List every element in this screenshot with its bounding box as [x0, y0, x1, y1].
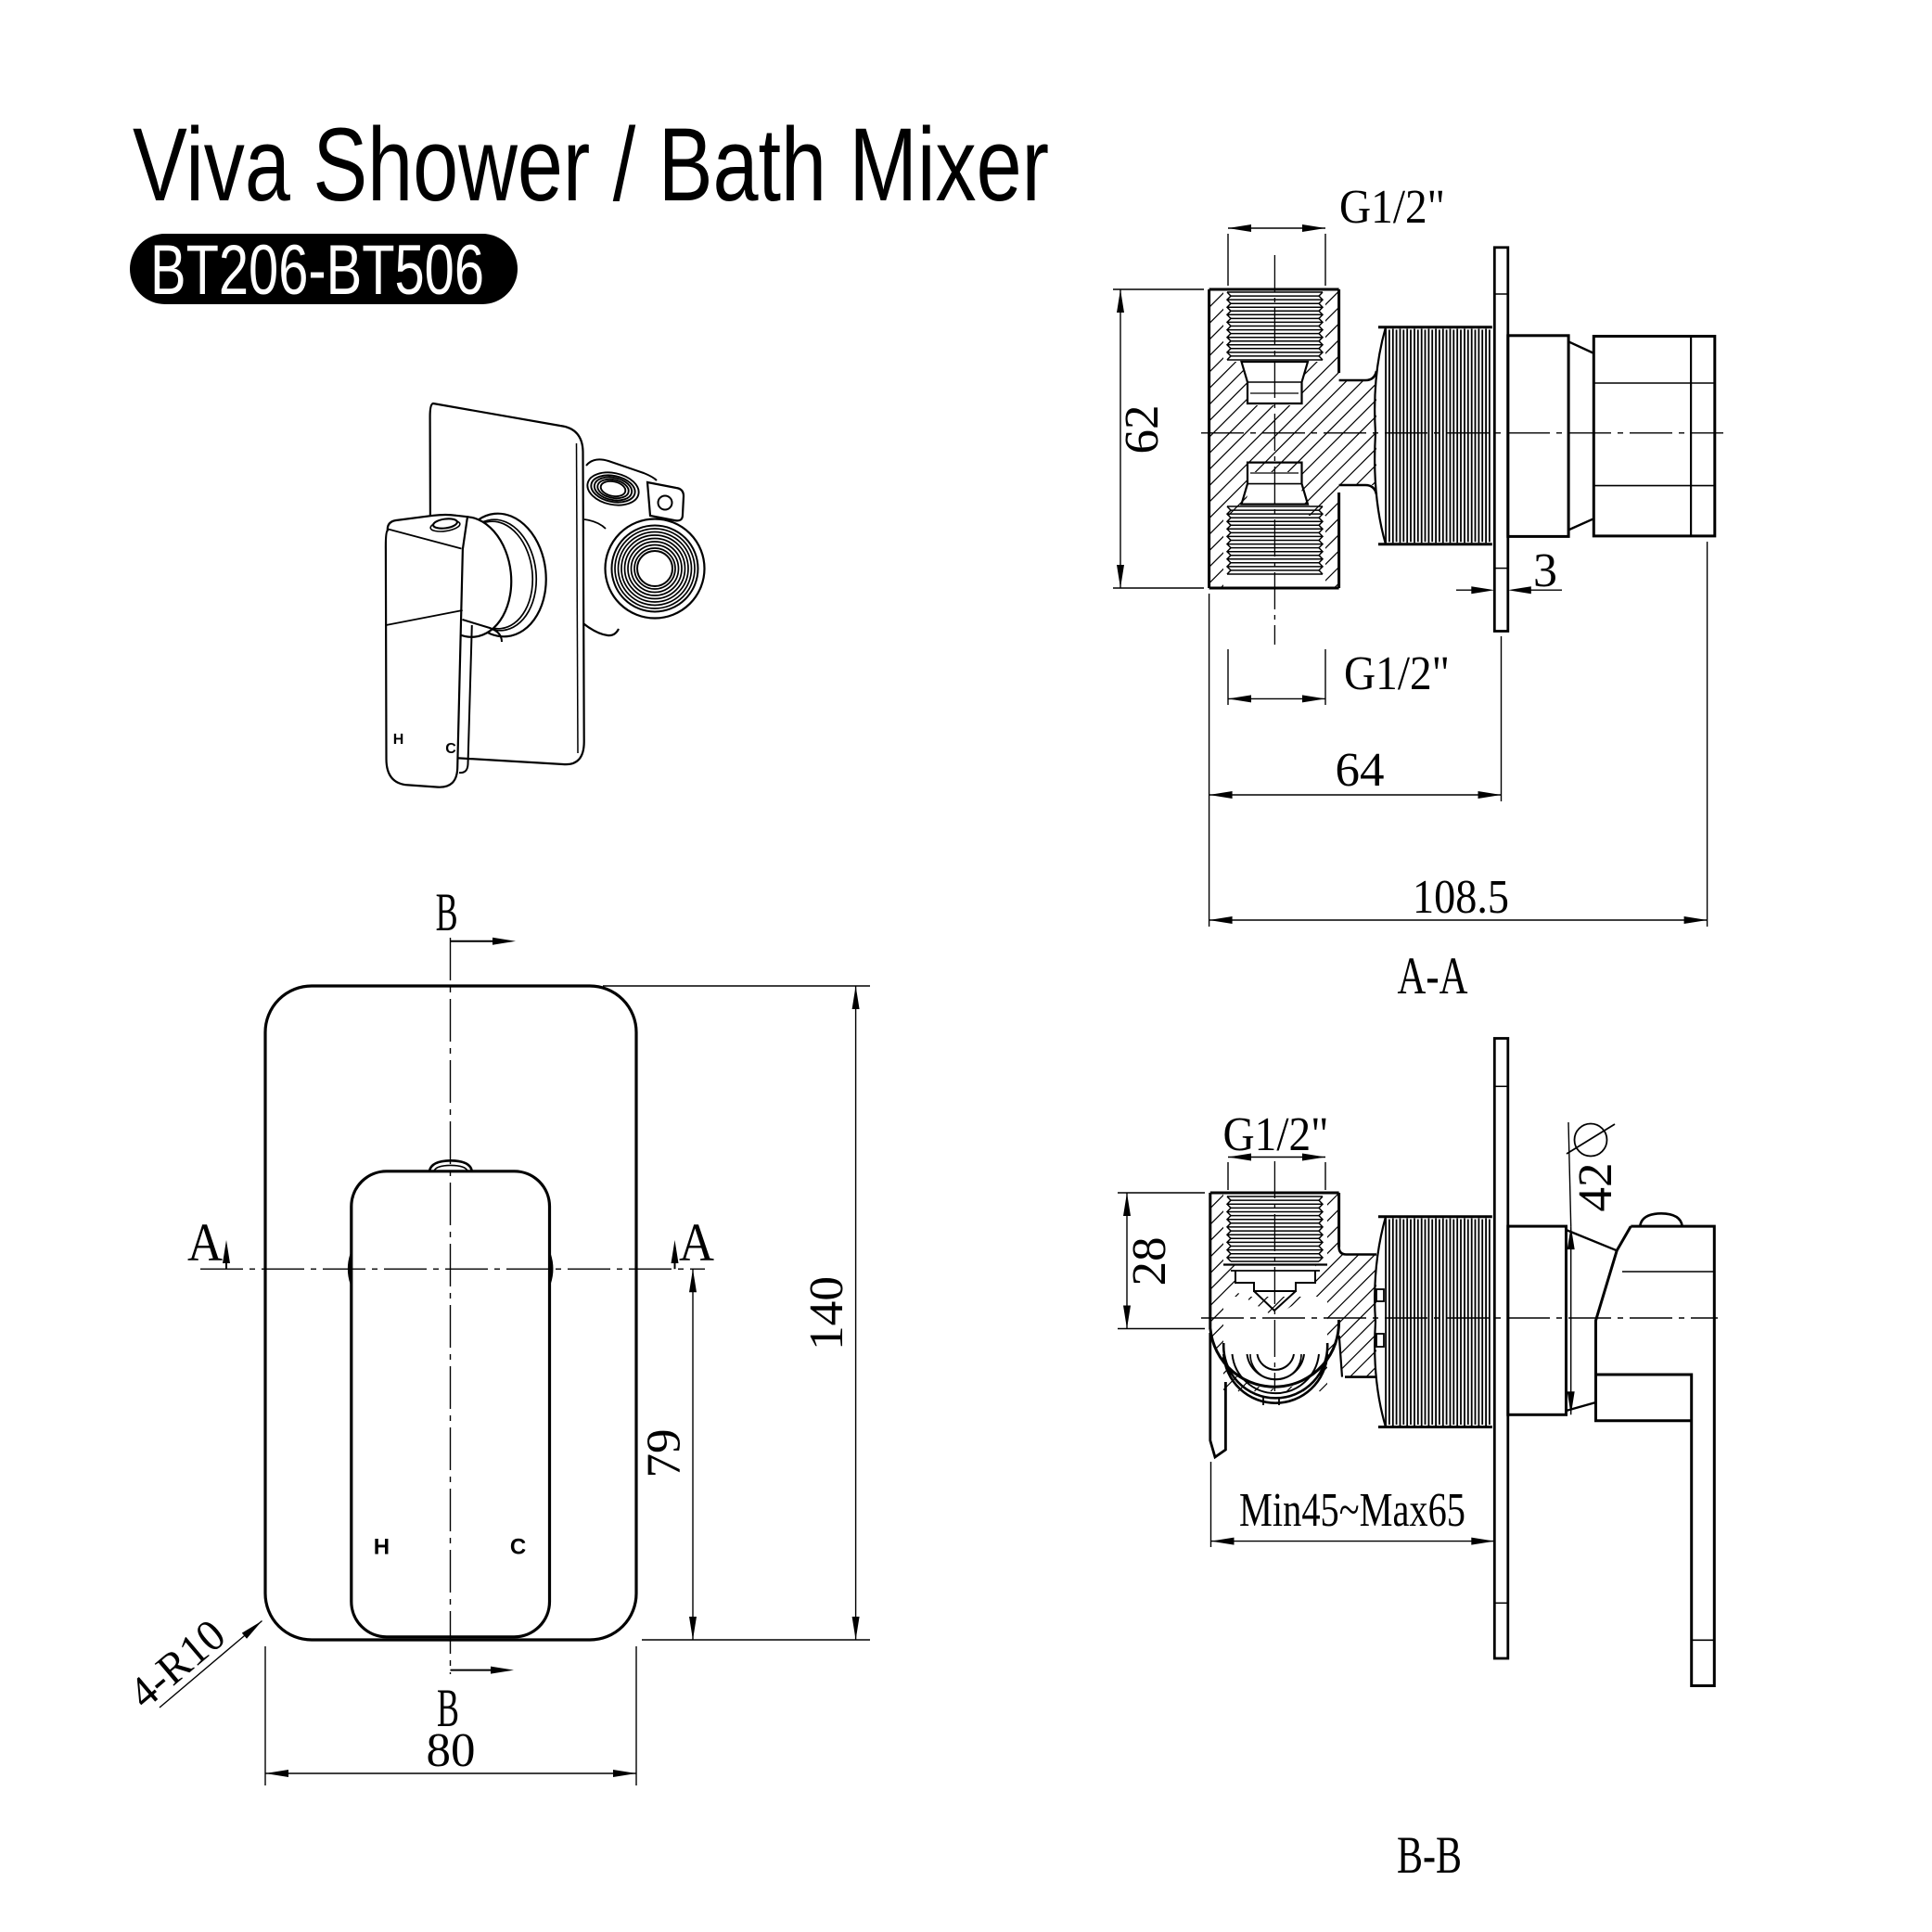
svg-text:G1/2": G1/2"	[1223, 1108, 1329, 1161]
svg-text:B-B: B-B	[1397, 1826, 1462, 1885]
svg-text:A-A: A-A	[1398, 947, 1468, 1005]
svg-text:140: 140	[800, 1276, 853, 1350]
svg-text:64: 64	[1336, 744, 1385, 797]
svg-text:108.5: 108.5	[1413, 871, 1509, 924]
svg-text:A: A	[679, 1212, 714, 1273]
svg-text:H: H	[393, 732, 404, 748]
svg-text:3: 3	[1533, 544, 1557, 597]
svg-text:B: B	[436, 882, 458, 942]
svg-text:Min45~Max65: Min45~Max65	[1239, 1484, 1465, 1537]
svg-text:79: 79	[638, 1429, 691, 1478]
svg-text:BT206-BT506: BT206-BT506	[150, 231, 484, 310]
svg-text:A: A	[187, 1212, 223, 1273]
svg-text:C: C	[445, 741, 456, 757]
svg-text:G1/2": G1/2"	[1339, 181, 1445, 234]
svg-text:H: H	[374, 1535, 390, 1560]
svg-text:Viva Shower / Bath Mixer: Viva Shower / Bath Mixer	[133, 107, 1049, 223]
svg-text:62: 62	[1116, 405, 1169, 454]
svg-text:80: 80	[427, 1724, 476, 1777]
svg-text:C: C	[510, 1535, 526, 1560]
svg-text:28: 28	[1123, 1237, 1176, 1286]
svg-text:G1/2": G1/2"	[1344, 647, 1450, 700]
svg-text:42: 42	[1569, 1163, 1622, 1212]
